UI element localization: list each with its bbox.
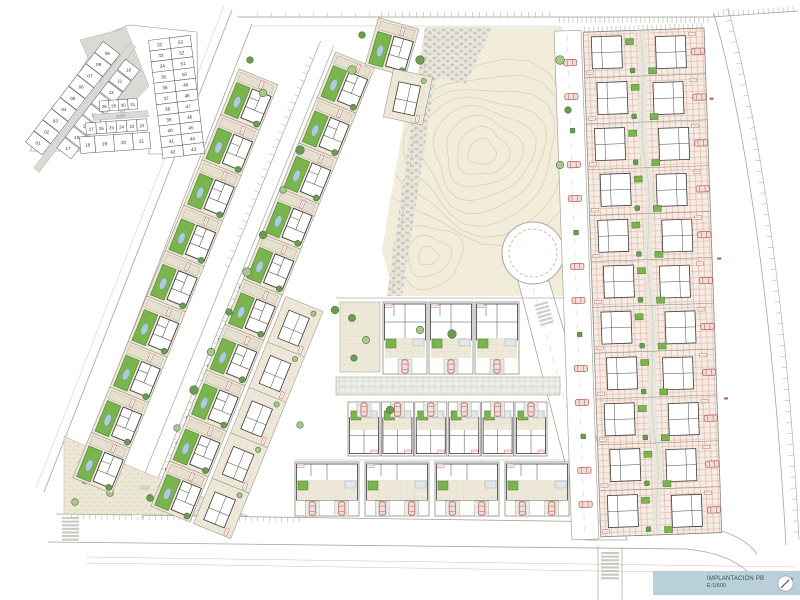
keyplan-number: 28 (102, 104, 108, 109)
boundary-tick (745, 106, 750, 107)
keyplan-number: 31 (130, 102, 136, 107)
car-icon (461, 403, 467, 416)
car-icon (449, 502, 455, 515)
boundary-tick (732, 41, 737, 42)
block-lawn (625, 38, 633, 44)
car-body (696, 185, 709, 192)
car-body (495, 403, 501, 416)
tree-icon (259, 89, 267, 97)
boundary-tick (755, 160, 760, 161)
boundary-tick (776, 313, 781, 314)
bush-icon (570, 128, 575, 133)
car-body (694, 140, 707, 147)
boundary-tick (281, 124, 286, 126)
boundary-tick (729, 31, 734, 32)
townhouse-unit (515, 402, 547, 456)
townhouse-unit (348, 402, 380, 456)
bush-icon (632, 114, 637, 119)
boundary-tick (768, 247, 773, 248)
car-icon (567, 161, 580, 168)
car-icon (448, 360, 454, 373)
block-lawn (661, 435, 669, 441)
car-body (578, 467, 591, 474)
keyplan-number: 23 (129, 124, 135, 129)
block-lawn (660, 389, 668, 395)
boundary-tick (227, 257, 232, 259)
boundary-tick (737, 63, 742, 64)
keyplan-number: 27 (89, 126, 95, 131)
car-body (379, 502, 385, 515)
tree-icon (190, 386, 199, 395)
compass-north-label: N (791, 576, 794, 580)
keyplan-number: 09 (105, 51, 111, 56)
crosswalk-stripe (601, 552, 619, 554)
keyplan-number: 08 (96, 62, 102, 67)
drawing-scale: E:1/600 (707, 583, 764, 589)
boundary-tick (751, 138, 756, 139)
bush-icon (630, 68, 635, 73)
block-lawn (653, 205, 661, 211)
boundary-tick (294, 94, 299, 96)
crosswalk-stripe (601, 566, 619, 568)
car-body (361, 403, 367, 416)
crosswalk-stripe (62, 539, 79, 541)
keyplan-number: 02 (44, 129, 50, 134)
block-lawn (658, 343, 666, 349)
car-body (519, 502, 525, 515)
car-icon (428, 403, 434, 416)
site-plan-sheet: ZC01010203040506070809101112131415161732… (0, 0, 800, 600)
boundary-tick (291, 102, 296, 104)
car-body (461, 403, 467, 416)
boundary-tick (739, 74, 744, 75)
bush-icon (644, 481, 649, 486)
block-lawn (641, 359, 649, 365)
boundary-tick (734, 52, 739, 53)
car-icon (549, 502, 555, 515)
north-arrow-icon: N (776, 574, 795, 593)
car-icon (519, 502, 525, 515)
townhouse-terrace (505, 339, 516, 346)
car-body (579, 501, 592, 508)
townhouse-terrace (485, 481, 496, 488)
crosswalk-stripe (601, 563, 619, 565)
car-body (568, 195, 581, 202)
boundary-tick (772, 280, 777, 281)
bush-icon (643, 435, 648, 440)
car-icon (528, 403, 534, 416)
tree-icon (247, 57, 254, 64)
car-icon (699, 277, 712, 284)
boundary-tick (309, 57, 314, 59)
car-icon (706, 461, 719, 468)
townhouse-lawn (432, 339, 442, 348)
townhouse-lawn (368, 481, 378, 490)
block-lawn (664, 526, 672, 532)
car-icon (693, 94, 706, 101)
block-lawn (629, 130, 637, 136)
townhouse-unit (475, 302, 519, 374)
boundary-tick (300, 80, 305, 82)
keyplan-number: 04 (61, 107, 67, 112)
keyplan-number: 06 (79, 85, 85, 90)
block-lawn (656, 297, 664, 303)
keyplan-number: 01 (35, 141, 41, 146)
tree-icon (556, 161, 564, 169)
bush-icon (577, 332, 582, 337)
tree-icon (348, 314, 355, 321)
tree-icon (147, 495, 154, 502)
title-block-text: IMPLANTACIÓN PB E:1/600 (707, 576, 764, 589)
crosswalk-stripe (601, 570, 619, 572)
tree-icon (243, 268, 252, 277)
car-body (428, 403, 434, 416)
crosswalk-stripe (601, 574, 619, 576)
car-icon (575, 399, 588, 406)
car-icon (495, 403, 501, 416)
car-body (574, 365, 587, 372)
block-lawn (634, 176, 642, 182)
townhouse-unit (415, 402, 447, 456)
keyplan-zone-label: ZC02 (116, 114, 125, 119)
block-lawn (635, 314, 643, 320)
car-icon (494, 360, 500, 373)
keyplan-number: 17 (65, 146, 71, 151)
crosswalk-stripe (601, 556, 619, 558)
car-icon (479, 502, 485, 515)
tree-icon (359, 32, 366, 39)
tree-icon (386, 406, 394, 414)
boundary-tick (774, 291, 779, 292)
townhouse-unit (482, 402, 514, 456)
boundary-tick (278, 131, 283, 133)
car-body (549, 502, 555, 515)
townhouse-lawn (298, 481, 308, 490)
dimension-mark (710, 98, 714, 100)
boundary-tick (765, 225, 770, 226)
crosswalk-stripe (62, 524, 79, 526)
keyplan-number: 12 (109, 90, 115, 95)
townhouse-unit (448, 402, 480, 456)
car-icon (698, 231, 711, 238)
block-lawn (655, 251, 663, 257)
townhouse-terrace (345, 481, 356, 488)
car-icon (694, 140, 707, 147)
bush-icon (638, 297, 643, 302)
east-road-outer (728, 8, 799, 540)
car-body (563, 59, 576, 66)
bush-icon (640, 343, 645, 348)
keyplan-number: 22 (139, 123, 145, 128)
keyplan-number: 20 (121, 140, 127, 145)
boundary-tick (775, 302, 780, 303)
townhouse-area (295, 302, 569, 516)
boundary-tick (287, 109, 292, 111)
townhouse-street (336, 377, 560, 395)
townhouse-lawn (386, 339, 396, 348)
car-icon (701, 323, 714, 330)
keyplan-number: 26 (99, 126, 105, 131)
car-body (575, 399, 588, 406)
car-body (691, 48, 704, 55)
boundary-tick (236, 235, 241, 237)
boundary-tick (778, 335, 783, 336)
keyplan-number: 03 (53, 118, 59, 123)
boundary-tick (760, 193, 765, 194)
bush-icon (635, 206, 640, 211)
car-icon (568, 195, 581, 202)
tree-icon (448, 330, 457, 339)
car-body (565, 93, 578, 100)
car-icon (579, 501, 592, 508)
tree-icon (174, 425, 181, 432)
car-icon (707, 507, 720, 514)
boundary-tick (726, 20, 731, 21)
boundary-tick (266, 161, 271, 163)
car-icon (574, 365, 587, 372)
key-plan: ZC01010203040506070809101112131415161732… (25, 25, 204, 172)
crosswalk-stripe (62, 535, 79, 537)
bush-icon (636, 251, 641, 256)
boundary-tick (242, 220, 247, 222)
boundary-tick (753, 149, 758, 150)
boundary-tick (254, 191, 259, 193)
keyplan-number: 18 (85, 142, 91, 147)
boundary-tick (224, 265, 229, 267)
block-lawn (652, 159, 660, 165)
car-body (309, 502, 315, 515)
boundary-tick (233, 243, 238, 245)
crosswalk-stripe (62, 531, 79, 533)
boundary-tick (762, 204, 767, 205)
car-icon (339, 502, 345, 515)
townhouse-unit (505, 462, 569, 516)
boundary-tick (771, 269, 776, 270)
bush-icon (574, 230, 579, 235)
block-lawn (638, 405, 646, 411)
boundary-tick (764, 214, 769, 215)
tree-icon (362, 336, 369, 343)
car-icon (361, 403, 367, 416)
townhouse-lawn (438, 481, 448, 490)
block-lawn (650, 114, 658, 120)
keyplan-number: 16 (74, 135, 80, 140)
crosswalk-stripe (62, 528, 79, 530)
car-body (567, 161, 580, 168)
drawing-title: IMPLANTACIÓN PB (707, 576, 764, 583)
block-lawn (663, 480, 671, 486)
townhouse-lawn (508, 481, 518, 490)
dimension-mark (717, 258, 721, 260)
title-block: IMPLANTACIÓN PB E:1/600 N (653, 571, 800, 595)
tree-icon (416, 56, 425, 65)
townhouse-lawn (478, 339, 488, 348)
car-body (572, 297, 585, 304)
crosswalk-stripe (601, 559, 619, 561)
boundary-tick (741, 84, 746, 85)
bench (140, 486, 149, 489)
car-icon (409, 502, 415, 515)
car-body (394, 403, 400, 416)
boundary-tick (263, 168, 268, 170)
boundary-tick (248, 206, 253, 208)
keyplan-number: 25 (109, 125, 115, 130)
boundary-tick (230, 250, 235, 252)
car-body (494, 360, 500, 373)
site-plan-drawing: ZC01010203040506070809101112131415161732… (0, 0, 800, 600)
car-icon (563, 59, 576, 66)
townhouse-unit (365, 462, 429, 516)
bush-icon (641, 389, 646, 394)
boundary-tick (777, 324, 782, 325)
tree-icon (565, 107, 572, 114)
car-icon (691, 48, 704, 55)
boundary-tick (284, 117, 289, 119)
tree-icon (207, 348, 215, 356)
tree-icon (72, 499, 79, 506)
car-icon (696, 185, 709, 192)
car-icon (578, 467, 591, 474)
block-lawn (631, 84, 639, 90)
tree-icon (259, 231, 267, 239)
right-block (554, 23, 733, 540)
keyplan-number: 29 (111, 103, 117, 108)
block-lawn (632, 222, 640, 228)
car-icon (565, 93, 578, 100)
car-body (698, 231, 711, 238)
bush-icon (646, 527, 651, 532)
plan-line (86, 557, 795, 567)
tree-icon (331, 306, 339, 314)
boundary-tick (260, 176, 265, 178)
crosswalk-stripe (62, 517, 79, 519)
car-body (409, 502, 415, 515)
car-icon (704, 415, 717, 422)
boundary-tick (757, 171, 762, 172)
keyplan-number: 07 (87, 73, 93, 78)
boundary-tick (769, 258, 774, 259)
townhouse-terrace (413, 339, 424, 346)
boundary-tick (239, 228, 244, 230)
block-lawn (637, 268, 645, 274)
block-lawn (648, 68, 656, 74)
car-body (479, 502, 485, 515)
east-road-inner (714, 14, 786, 545)
car-body (701, 323, 714, 330)
bush-icon (581, 434, 586, 439)
car-body (339, 502, 345, 515)
car-body (693, 94, 706, 101)
townhouse-unit (383, 302, 427, 374)
boundary-tick (747, 117, 752, 118)
boundary-tick (779, 345, 784, 346)
tree-icon (297, 422, 304, 429)
car-body (706, 461, 719, 468)
boundary-tick (251, 198, 256, 200)
tree-icon (416, 326, 424, 334)
block-lawn (644, 451, 652, 457)
tree-icon (280, 187, 287, 194)
boundary-tick (767, 236, 772, 237)
keyplan-number: 24 (119, 124, 125, 129)
crosswalk-stripe (601, 577, 619, 579)
boundary-tick (759, 182, 764, 183)
car-body (699, 277, 712, 284)
car-icon (572, 297, 585, 304)
boundary-tick (743, 95, 748, 96)
keyplan-number: 05 (70, 96, 76, 101)
townhouse-terrace (459, 339, 470, 346)
car-body (402, 360, 408, 373)
keyplan-number: 19 (102, 141, 108, 146)
car-body (528, 403, 534, 416)
car-body (704, 415, 717, 422)
boundary-tick (297, 87, 302, 89)
keyplan-number: 21 (139, 138, 145, 143)
car-icon (571, 263, 584, 270)
keyplan-number: 10 (126, 67, 132, 72)
townhouse-terrace (415, 481, 426, 488)
tree-icon (351, 355, 357, 361)
townhouse-garden (340, 302, 380, 372)
tree-icon (556, 56, 565, 65)
car-icon (394, 403, 400, 416)
bush-icon (633, 160, 638, 165)
plan-line (712, 11, 798, 17)
keyplan-number: 11 (118, 79, 123, 84)
boundary-tick (275, 139, 280, 141)
boundary-tick (724, 9, 729, 10)
tree-icon (226, 309, 233, 316)
boundary-tick (749, 128, 754, 129)
car-icon (402, 360, 408, 373)
car-icon (379, 502, 385, 515)
keyplan-number: 30 (121, 102, 127, 107)
car-body (448, 360, 454, 373)
boundary-tick (303, 72, 308, 74)
boundary-tick (245, 213, 250, 215)
car-body (702, 369, 715, 376)
car-body (449, 502, 455, 515)
car-body (571, 263, 584, 270)
car-icon (309, 502, 315, 515)
boundary-tick (257, 183, 262, 185)
crosswalk-stripe (62, 521, 79, 523)
keyplan-right-grid: 3253335234513550364937483847394640454144… (149, 35, 205, 158)
block-lawn (641, 497, 649, 503)
tree-icon (296, 146, 305, 155)
boundary-tick (269, 154, 274, 156)
boundary-tick (272, 146, 277, 148)
dimension-mark (724, 397, 728, 399)
culdesac-circle (502, 222, 564, 284)
car-body (707, 507, 720, 514)
tree-icon (348, 66, 357, 75)
townhouse-terrace (555, 481, 566, 488)
car-icon (702, 369, 715, 376)
townhouse-unit (435, 462, 499, 516)
boundary-tick (306, 65, 311, 67)
townhouse-unit (295, 462, 359, 516)
